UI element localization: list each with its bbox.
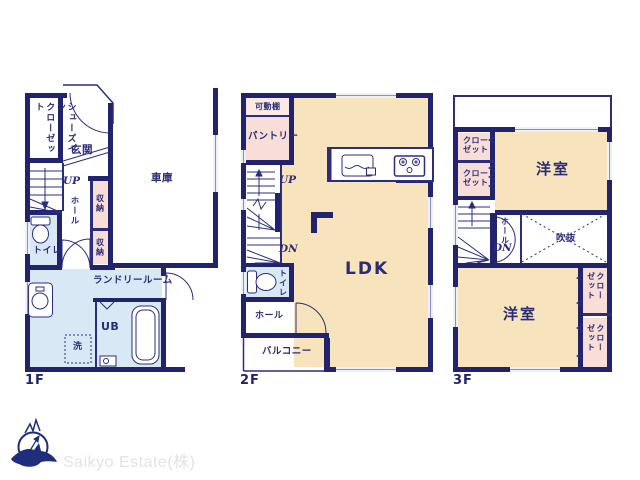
f3-room-upper-label: 洋室 [536, 161, 570, 179]
compass-icon [11, 420, 57, 467]
wall [95, 302, 97, 370]
f1-hall-label: ホール [69, 196, 79, 226]
stair-window [453, 205, 458, 245]
ldk-window [336, 367, 396, 372]
wall [241, 333, 329, 338]
floor2-label: 2F [240, 373, 260, 388]
laundry-window [25, 282, 30, 314]
wall [90, 176, 93, 265]
wall [453, 263, 612, 268]
toilet-window [25, 222, 30, 254]
wall [161, 298, 166, 372]
toilet-window [241, 272, 246, 294]
f1-entrance-label: 玄関 [71, 144, 93, 156]
f2-shelf-label: 可動棚 [255, 102, 281, 111]
f1-hall-doors [62, 239, 90, 268]
floorplan-page: シューズイン クローゼット 玄関 車庫 UP ホール 収納 収納 トイレ ランド… [0, 0, 640, 480]
garage-window [213, 135, 218, 192]
f3-closet-c-label: クロー ゼット [586, 272, 605, 301]
wall [495, 210, 612, 215]
floor1-label: 1F [25, 373, 45, 388]
f1-storage-b-label: 収納 [95, 238, 104, 257]
f2-pantry-label: パントリー [248, 131, 298, 142]
wall [57, 215, 62, 267]
wall [458, 160, 494, 163]
wall [583, 313, 612, 316]
wall [324, 338, 330, 372]
f2-ldk-label: LDK [345, 259, 389, 279]
bedroom-window [515, 127, 598, 132]
wall [311, 218, 317, 233]
f3-room-lower-label: 洋室 [503, 306, 537, 324]
f3-closet-b-label: クロー ゼット [463, 169, 489, 188]
f2-toilet-label: トイレ [278, 269, 287, 298]
f1-storage-a-label: 収納 [95, 194, 104, 213]
f2-hall-label: ホール [255, 311, 284, 322]
f3-down-label: DN [493, 242, 512, 254]
f1-laundry-label: ランドリールーム [93, 275, 173, 286]
f2-up-label: UP [279, 174, 296, 186]
f1-bath-label: UB [101, 321, 119, 334]
wall [246, 263, 294, 267]
f2-balcony-label: バルコニー [262, 346, 312, 357]
f1-stairs [30, 168, 62, 213]
bedroom-window [453, 287, 458, 327]
bedroom-window [607, 142, 612, 180]
wall [578, 268, 583, 367]
f1-up-label: UP [63, 175, 80, 187]
wall [241, 160, 294, 165]
wall [396, 178, 433, 183]
wall [25, 367, 185, 372]
f1-shoes-closet-label: シューズイン クローゼット [33, 102, 75, 162]
pantry-window [241, 150, 246, 163]
wall [246, 115, 289, 117]
wall [453, 127, 458, 372]
wall [25, 265, 62, 270]
f3-roof-balcony [453, 95, 612, 130]
wall [428, 93, 433, 372]
f1-toilet-label: トイレ [33, 246, 62, 257]
f2-down-label: DN [279, 243, 298, 255]
floor3-label: 3F [453, 373, 473, 388]
ldk-window [428, 285, 433, 318]
wall [93, 298, 165, 302]
brand-text: Saikyo Estate(株) [63, 448, 196, 472]
wall [490, 132, 495, 200]
wall [453, 196, 495, 200]
f3-closet-d-label: クロー ゼット [586, 324, 605, 353]
wall [246, 297, 294, 302]
ldk-window [336, 93, 396, 98]
f1-garage-label: 車庫 [151, 172, 173, 184]
stair-window [241, 199, 246, 210]
f3-void-label: 吹抜 [556, 233, 576, 244]
wall [520, 213, 522, 263]
f3-closet-a-label: クロー ゼット [463, 136, 489, 155]
bedroom-window [510, 367, 560, 372]
wall [108, 103, 113, 268]
wall [289, 93, 294, 165]
f1-toilet-room [28, 214, 59, 266]
f3-stairs [458, 202, 490, 263]
wall [62, 163, 64, 211]
wall [490, 213, 497, 263]
f1-washer-label: 洗 [73, 342, 83, 353]
ldk-window [428, 197, 433, 228]
